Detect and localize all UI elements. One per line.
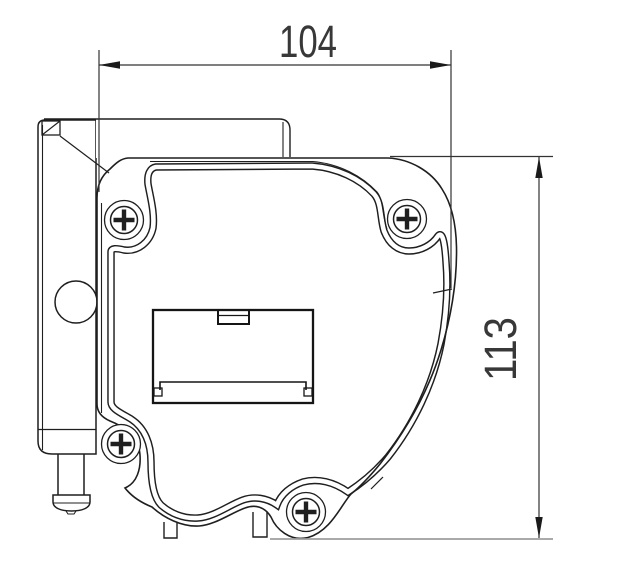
arrow-right-icon — [430, 61, 451, 68]
dimension-height-label: 113 — [475, 317, 526, 381]
screw-bottom-left — [102, 425, 141, 464]
arrow-left-icon — [99, 61, 120, 68]
dimension-width-label: 104 — [279, 16, 337, 67]
screw-top-right — [388, 200, 427, 239]
battery-cover — [153, 310, 313, 403]
bottom-tab-right — [253, 512, 267, 537]
mounting-pin — [53, 454, 90, 514]
technical-drawing: 104 113 — [0, 0, 623, 565]
technical-drawing-page: 104 113 — [0, 0, 623, 565]
lower-right-tick — [371, 477, 383, 489]
bottom-tab-left — [164, 522, 177, 538]
bracket-hole — [55, 281, 97, 323]
rail-outline — [96, 119, 290, 158]
arrow-up-icon — [535, 157, 542, 178]
arrow-down-icon — [535, 517, 542, 538]
screw-bottom — [287, 493, 326, 532]
mounting-bracket — [38, 120, 97, 454]
pin-shaft — [58, 454, 84, 495]
screw-top-left — [105, 201, 144, 240]
